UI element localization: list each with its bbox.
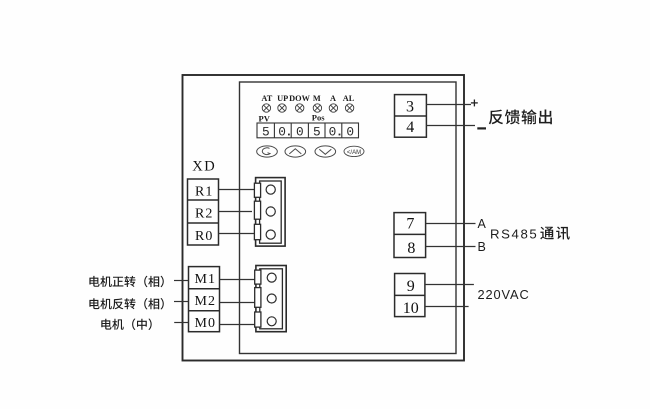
svg-text:M1: M1	[195, 272, 216, 287]
svg-text:5: 5	[313, 124, 321, 139]
svg-text:B: B	[478, 240, 486, 254]
svg-text:9: 9	[407, 278, 415, 295]
svg-text:RS485: RS485	[490, 227, 538, 242]
svg-text:</AM: </AM	[347, 150, 361, 156]
svg-text:5: 5	[262, 124, 270, 139]
svg-text:A: A	[478, 217, 487, 231]
svg-text:220VAC: 220VAC	[478, 287, 530, 302]
svg-text:M: M	[313, 94, 321, 103]
svg-text:DOW: DOW	[289, 94, 310, 103]
svg-text:M2: M2	[195, 294, 216, 309]
svg-text:4: 4	[406, 119, 414, 136]
svg-text:M0: M0	[195, 316, 216, 331]
svg-text:AL: AL	[343, 94, 355, 103]
svg-text:XD: XD	[192, 159, 216, 175]
svg-text:10: 10	[403, 300, 419, 317]
svg-text:3: 3	[406, 98, 414, 115]
svg-text:Pos: Pos	[312, 113, 325, 123]
svg-text:A: A	[330, 94, 336, 103]
svg-text:PV: PV	[259, 113, 271, 123]
svg-text:UP: UP	[277, 94, 288, 103]
svg-text:0: 0	[278, 124, 286, 139]
svg-text:0: 0	[346, 124, 354, 139]
svg-text:0: 0	[296, 124, 304, 139]
svg-text:7: 7	[406, 216, 414, 233]
svg-text:R0: R0	[195, 229, 213, 244]
svg-text:R2: R2	[195, 207, 213, 222]
svg-text:R1: R1	[195, 184, 213, 199]
svg-text:8: 8	[407, 240, 415, 257]
svg-text:AT: AT	[261, 94, 272, 103]
svg-text:0: 0	[329, 124, 337, 139]
